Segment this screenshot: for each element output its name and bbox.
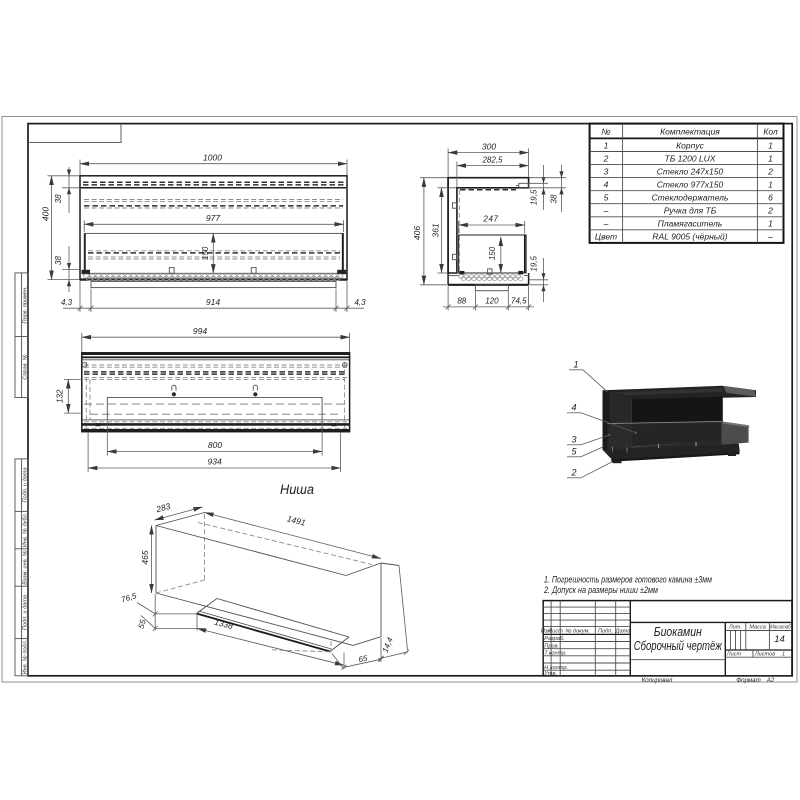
svg-text:19,5: 19,5	[529, 255, 538, 271]
svg-text:74,5: 74,5	[511, 297, 527, 306]
svg-text:38: 38	[54, 194, 63, 203]
svg-text:Комплектация: Комплектация	[660, 127, 720, 137]
svg-text:Цвет: Цвет	[595, 232, 617, 242]
svg-text:Перв. примен.: Перв. примен.	[22, 286, 28, 323]
svg-text:406: 406	[412, 226, 422, 240]
svg-text:№ докум.: № докум.	[565, 629, 590, 635]
svg-text:Стеклодержатель: Стеклодержатель	[652, 193, 729, 203]
svg-text:1: 1	[782, 652, 785, 658]
svg-text:Лист: Лист	[726, 652, 742, 658]
svg-text:Подп. и дата: Подп. и дата	[22, 595, 28, 630]
svg-text:Взам. инв. №: Взам. инв. №	[22, 550, 28, 585]
svg-text:Разраб.: Разраб.	[544, 636, 564, 642]
svg-text:2: 2	[603, 153, 609, 163]
svg-text:6: 6	[768, 193, 773, 203]
svg-text:Листов: Листов	[754, 652, 775, 658]
svg-text:№: №	[601, 127, 610, 137]
svg-text:Стекло 977х150: Стекло 977х150	[657, 180, 724, 190]
svg-text:1. Погрешность размеров готово: 1. Погрешность размеров готового камина …	[544, 575, 712, 585]
svg-text:800: 800	[208, 440, 222, 450]
svg-text:Подп. и дата: Подп. и дата	[22, 467, 28, 502]
svg-text:Корпус: Корпус	[676, 140, 704, 150]
svg-text:38: 38	[550, 194, 559, 203]
svg-text:Инв. № дубл.: Инв. № дубл.	[22, 513, 28, 547]
svg-text:Биокамин: Биокамин	[654, 624, 702, 639]
svg-text:1: 1	[768, 140, 773, 150]
svg-text:Дата: Дата	[615, 629, 631, 635]
svg-text:Подп.: Подп.	[598, 629, 613, 635]
svg-text:Сборочный чертёж: Сборочный чертёж	[634, 638, 723, 653]
svg-text:1: 1	[573, 360, 578, 370]
svg-text:Формат: Формат	[736, 677, 761, 684]
svg-text:Копировал: Копировал	[642, 677, 673, 684]
svg-text:132: 132	[56, 389, 65, 403]
svg-text:Ручка для ТБ: Ручка для ТБ	[664, 206, 717, 216]
svg-text:3: 3	[571, 435, 576, 445]
svg-text:Лист: Лист	[547, 629, 563, 635]
svg-text:Инв. № подл.: Инв. № подл.	[22, 640, 28, 675]
svg-text:120: 120	[485, 297, 499, 306]
svg-text:Стекло 247х150: Стекло 247х150	[657, 166, 724, 176]
svg-text:19,5: 19,5	[529, 189, 538, 205]
svg-text:150: 150	[488, 246, 497, 260]
svg-text:Лит.: Лит.	[728, 625, 742, 631]
svg-text:2: 2	[767, 206, 773, 216]
svg-text:Масштаб: Масштаб	[770, 625, 791, 631]
svg-text:4,3: 4,3	[354, 298, 366, 307]
svg-text:38: 38	[54, 256, 63, 265]
svg-text:247: 247	[482, 215, 498, 224]
svg-text:977: 977	[206, 213, 220, 223]
svg-text:Пров.: Пров.	[544, 643, 559, 649]
svg-text:–: –	[767, 232, 773, 242]
svg-text:88: 88	[457, 297, 466, 306]
svg-text:Н.контр.: Н.контр.	[544, 665, 568, 671]
svg-text:А2: А2	[766, 677, 775, 684]
svg-text:1000: 1000	[203, 152, 222, 162]
svg-text:–: –	[603, 219, 609, 229]
svg-text:Масса: Масса	[749, 625, 766, 631]
svg-text:914: 914	[206, 297, 220, 307]
svg-text:Пламягаситель: Пламягаситель	[658, 219, 723, 229]
svg-text:Ниша: Ниша	[280, 482, 314, 498]
svg-text:Утв.: Утв.	[543, 671, 557, 677]
svg-text:1: 1	[768, 219, 773, 229]
svg-text:1: 1	[768, 180, 773, 190]
svg-text:5: 5	[604, 193, 609, 203]
svg-text:4: 4	[571, 403, 576, 413]
svg-text:RAL 9005 (чёрный): RAL 9005 (чёрный)	[652, 232, 727, 242]
svg-text:1: 1	[768, 153, 773, 163]
svg-text:2: 2	[767, 166, 773, 176]
svg-text:282,5: 282,5	[481, 155, 503, 164]
svg-text:Т.контр.: Т.контр.	[544, 650, 567, 656]
svg-text:300: 300	[482, 141, 496, 151]
svg-text:465: 465	[140, 550, 150, 564]
svg-text:934: 934	[208, 457, 222, 467]
svg-text:14: 14	[774, 634, 785, 645]
svg-text:150: 150	[201, 246, 210, 260]
svg-text:Кол: Кол	[763, 127, 778, 137]
svg-text:1: 1	[604, 140, 609, 150]
svg-text:361: 361	[430, 223, 440, 237]
svg-text:400: 400	[41, 207, 51, 221]
svg-text:2: 2	[570, 468, 576, 478]
svg-text:2. Допуск на размеры ниши ±2мм: 2. Допуск на размеры ниши ±2мм	[543, 585, 658, 595]
svg-text:ТБ 1200 LUX: ТБ 1200 LUX	[665, 153, 716, 163]
svg-text:–: –	[603, 206, 609, 216]
svg-text:Справ. №: Справ. №	[22, 354, 28, 379]
svg-text:4: 4	[604, 180, 609, 190]
svg-text:994: 994	[193, 326, 207, 336]
svg-text:4,3: 4,3	[61, 298, 73, 307]
svg-text:3: 3	[604, 166, 609, 176]
